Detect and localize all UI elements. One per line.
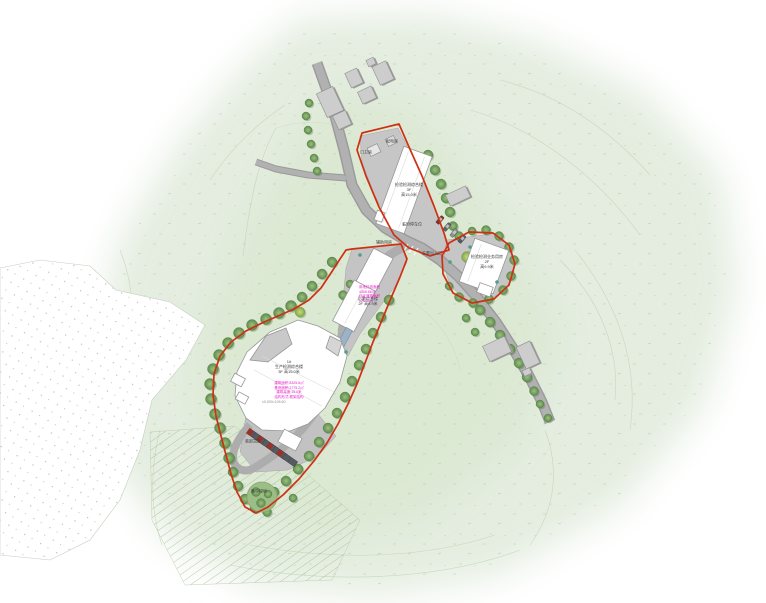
building-1-spec: 3F 高15.0米 xyxy=(275,370,303,375)
label-building-3: 检验检测业务用房 2F 高9.9米 xyxy=(471,254,503,270)
site-plan-drawing xyxy=(0,0,766,603)
note-mid-line1: 用地红线面积 xyxy=(359,285,380,290)
note-mid-pink: 用地红线面积 4308.86㎡ 代征道路面积 126.00㎡ xyxy=(359,285,380,303)
note-main-pink: 建筑面积:8325.6㎡ 基底面积:2775.2㎡ 建筑高度:15.0米 结构形… xyxy=(274,381,303,399)
note-main-line3: 建筑高度:15.0米 xyxy=(274,390,303,395)
note-mid-line3: 代征道路面积 xyxy=(359,294,380,299)
building-2-height: 高15.0米 xyxy=(395,193,423,198)
label-power-room: 配电房 xyxy=(386,139,398,144)
site-plan-canvas: 配电房 门卫房 检验检测综合楼 3F 高15.0米 临时停车位 主要出入口 检验… xyxy=(0,0,766,603)
label-loading-area: 装卸货区 xyxy=(245,439,261,444)
label-green-area: 集中绿地 xyxy=(251,489,267,494)
label-elevation-note: ±0.000=105.50 xyxy=(262,400,285,404)
label-guard-room: 门卫房 xyxy=(360,150,372,155)
note-main-line4: 结构形式:框架结构 xyxy=(274,395,303,400)
note-main-line1: 建筑面积:8325.6㎡ xyxy=(274,381,303,386)
label-building-1: 1# 生产检测综合楼 3F 高15.0米 xyxy=(275,359,303,375)
label-temp-parking: 临时停车位 xyxy=(402,222,422,227)
note-mid-line4: 126.00㎡ xyxy=(359,299,380,304)
building-3-height: 高9.9米 xyxy=(471,265,503,270)
label-aux-room: 辅助用房 xyxy=(376,240,392,245)
label-main-entrance: 主要出入口 xyxy=(422,251,442,256)
label-building-2: 检验检测综合楼 3F 高15.0米 xyxy=(395,182,423,198)
